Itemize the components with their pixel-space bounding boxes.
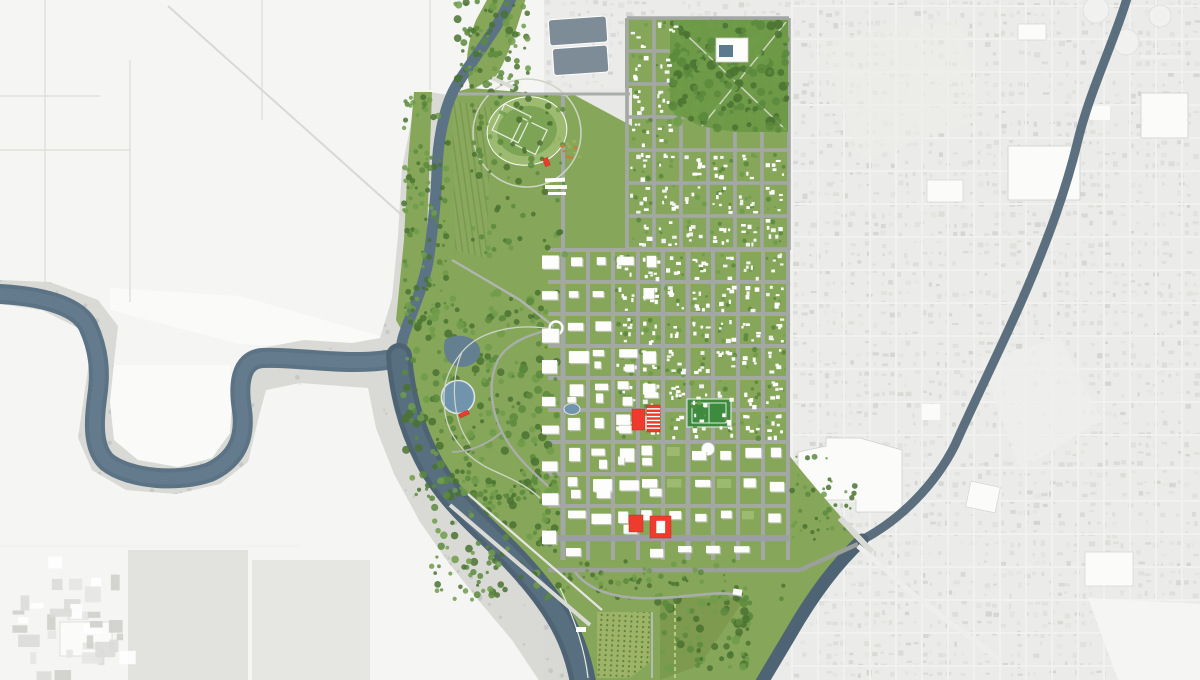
context-building: [1187, 543, 1191, 548]
context-building: [1194, 452, 1200, 454]
context-building: [1058, 621, 1064, 624]
tree: [647, 583, 652, 588]
tree: [486, 369, 490, 373]
tree: [554, 412, 560, 418]
tree: [471, 551, 475, 555]
context-building: [1121, 460, 1126, 464]
tree: [707, 37, 716, 46]
context-building: [1009, 83, 1012, 87]
tree: [676, 618, 680, 622]
tree: [418, 144, 423, 149]
context-building: [1139, 52, 1142, 55]
context-building: [986, 673, 990, 676]
context-building: [1066, 72, 1068, 77]
industrial-building: [85, 586, 101, 602]
tree: [555, 511, 560, 516]
tree: [421, 265, 424, 268]
context-building: [1113, 281, 1119, 285]
context-building: [1002, 223, 1004, 227]
context-building: [826, 393, 829, 398]
context-building: [986, 393, 990, 395]
context-building: [1018, 92, 1024, 95]
tree: [544, 596, 549, 601]
tree: [506, 323, 510, 327]
context-building: [939, 481, 944, 486]
context-building: [993, 162, 996, 166]
tree: [646, 577, 652, 583]
wood-speck: [383, 409, 385, 411]
industrial-building: [66, 650, 73, 658]
context-building: [1122, 263, 1124, 267]
context-building: [1097, 522, 1101, 525]
tree: [488, 592, 495, 599]
context-building: [1082, 260, 1087, 265]
context-building: [1065, 451, 1071, 455]
context-building: [1146, 382, 1150, 385]
context-building: [1001, 562, 1006, 566]
context-building: [881, 553, 884, 557]
context-building: [793, 262, 799, 266]
context-building: [1083, 593, 1086, 598]
tree: [471, 451, 474, 454]
context-building: [809, 373, 813, 375]
tree: [825, 457, 828, 460]
context-building: [1033, 672, 1036, 676]
context-building: [1146, 153, 1150, 157]
context-building: [1066, 543, 1070, 548]
context-building: [1195, 393, 1200, 397]
context-building: [1146, 1, 1149, 4]
context-building: [1027, 602, 1033, 605]
big-building: [927, 180, 963, 202]
context-building: [824, 242, 829, 245]
context-building: [985, 350, 990, 353]
context-building: [1017, 653, 1020, 658]
tree: [493, 289, 501, 297]
tree: [425, 188, 430, 193]
tree: [514, 319, 520, 325]
context-building: [857, 253, 860, 255]
tree: [429, 495, 435, 501]
context-building: [984, 594, 986, 596]
context-building: [1049, 324, 1051, 327]
context-building: [1193, 173, 1198, 175]
tree: [535, 406, 543, 414]
context-building: [794, 182, 798, 187]
context-building: [880, 230, 886, 235]
context-building: [833, 282, 836, 285]
tree: [503, 164, 510, 171]
context-building: [1144, 481, 1147, 483]
context-building: [1033, 314, 1036, 318]
context-building: [641, 12, 646, 16]
tree: [777, 69, 784, 76]
context-building: [1059, 583, 1065, 586]
context-building: [961, 572, 966, 577]
context-building: [819, 304, 824, 308]
tree: [718, 595, 721, 598]
context-building: [1186, 163, 1189, 166]
tree: [460, 470, 464, 474]
context-building: [954, 370, 960, 374]
context-building: [914, 241, 916, 243]
tree: [409, 475, 415, 481]
context-building: [586, 0, 588, 5]
context-building: [857, 560, 862, 564]
street-tree: [644, 23, 648, 27]
tree: [604, 588, 607, 591]
context-building: [545, 12, 549, 15]
context-building: [1074, 311, 1078, 314]
context-building: [1195, 573, 1200, 576]
context-building: [945, 521, 947, 526]
tree: [409, 317, 412, 320]
tree: [514, 309, 518, 313]
tree: [536, 341, 542, 347]
context-building: [1137, 392, 1139, 396]
context-building: [1097, 141, 1099, 144]
tree: [445, 546, 449, 550]
tree: [463, 588, 469, 594]
context-building: [1187, 291, 1193, 296]
tree: [521, 24, 526, 29]
tree: [517, 236, 522, 241]
context-building: [690, 12, 694, 16]
context-building: [993, 61, 999, 65]
context-building: [1040, 642, 1042, 646]
tree: [699, 579, 704, 584]
tree: [789, 488, 795, 494]
context-building: [889, 341, 892, 343]
map-canvas[interactable]: [0, 0, 1200, 680]
context-building: [1001, 124, 1006, 129]
tree: [410, 187, 412, 189]
context-building: [897, 443, 902, 448]
context-building: [1145, 61, 1150, 66]
tree: [674, 582, 679, 587]
context-building: [899, 174, 903, 176]
tree: [492, 66, 497, 71]
context-building: [1002, 574, 1007, 578]
context-building: [1163, 593, 1165, 596]
context-building: [1091, 40, 1096, 44]
context-building: [835, 371, 841, 376]
tree: [746, 641, 751, 646]
context-building: [874, 612, 880, 617]
context-building: [627, 0, 632, 4]
context-building: [832, 604, 836, 609]
tree: [502, 112, 506, 116]
context-building: [827, 654, 832, 659]
context-building: [1080, 252, 1083, 257]
context-building: [1193, 221, 1199, 224]
context-building: [1112, 522, 1116, 525]
context-building: [986, 602, 991, 606]
context-building: [688, 4, 690, 9]
tree: [415, 296, 420, 301]
context-building: [1146, 443, 1149, 448]
context-building: [890, 353, 896, 357]
context-building: [1080, 642, 1086, 647]
tree: [435, 302, 441, 308]
tree: [688, 116, 694, 122]
context-building: [1003, 472, 1006, 475]
context-building: [970, 24, 973, 29]
tree: [817, 528, 820, 531]
tree: [717, 117, 724, 124]
context-building: [824, 310, 826, 315]
tree: [420, 94, 426, 100]
context-building: [1010, 243, 1016, 248]
tree: [444, 142, 447, 145]
context-building: [1105, 263, 1110, 267]
tree: [598, 581, 603, 586]
tree: [431, 504, 438, 511]
context-building: [611, 14, 613, 17]
tree: [685, 626, 689, 630]
context-building: [545, 23, 548, 27]
context-building: [1066, 340, 1069, 345]
tree: [481, 589, 485, 593]
delta-orchard: [597, 612, 650, 678]
context-building: [1192, 493, 1197, 498]
context-building: [1091, 343, 1095, 346]
street-tree: [646, 175, 650, 179]
context-building: [865, 173, 869, 175]
tree: [634, 587, 637, 590]
context-building: [793, 161, 798, 164]
context-building: [1170, 52, 1176, 54]
context-building: [976, 603, 982, 608]
tree: [772, 97, 780, 105]
context-building: [898, 362, 901, 366]
tree: [520, 4, 526, 10]
context-building: [802, 114, 806, 118]
context-building: [856, 394, 860, 398]
tree: [766, 122, 775, 131]
context-building: [1099, 662, 1103, 664]
street-tree: [642, 129, 646, 133]
context-building: [1169, 591, 1175, 595]
tree: [417, 414, 424, 421]
tree: [482, 80, 490, 88]
tree: [668, 101, 677, 110]
tree: [432, 484, 437, 489]
tree: [476, 172, 483, 179]
industrial-building: [12, 625, 27, 632]
context-building: [851, 252, 855, 255]
wood-speck: [546, 658, 549, 661]
context-building: [873, 232, 879, 235]
context-building: [1059, 462, 1065, 466]
context-building: [987, 342, 993, 344]
tree: [481, 38, 488, 45]
masterplan-map[interactable]: [0, 0, 1200, 680]
tree: [711, 643, 718, 650]
context-building: [609, 54, 612, 58]
context-building: [865, 523, 868, 527]
context-building: [1010, 252, 1016, 256]
tree: [505, 546, 510, 551]
context-building: [785, 663, 789, 666]
tree: [685, 21, 689, 25]
industrial-building: [30, 603, 43, 608]
tree: [534, 386, 542, 394]
context-building: [1066, 561, 1070, 566]
tree: [701, 114, 708, 121]
context-building: [1034, 521, 1040, 525]
context-building: [569, 84, 572, 89]
context-building: [915, 222, 920, 227]
tree: [470, 103, 475, 108]
context-building: [891, 263, 895, 268]
context-building: [1065, 591, 1067, 593]
context-building: [1082, 162, 1085, 165]
tree: [477, 68, 482, 73]
tree: [677, 640, 685, 648]
context-building: [1104, 194, 1108, 199]
tree: [450, 521, 455, 526]
context-building: [1065, 583, 1070, 586]
context-building: [955, 512, 959, 516]
context-building: [808, 410, 814, 413]
context-building: [859, 552, 862, 557]
context-building: [1057, 282, 1061, 287]
context-building: [810, 92, 814, 97]
tree: [749, 69, 757, 77]
tree: [753, 106, 759, 112]
context-building: [1130, 354, 1136, 359]
context-building: [1104, 363, 1110, 368]
tree: [754, 20, 759, 25]
context-building: [1137, 83, 1142, 87]
context-building: [1120, 590, 1124, 595]
big-building: [922, 404, 940, 420]
tree: [529, 426, 535, 432]
context-building: [1058, 513, 1061, 517]
context-building: [985, 661, 990, 663]
context-building: [1073, 211, 1077, 215]
context-building: [562, 2, 567, 5]
context-building: [984, 404, 988, 408]
context-building: [1082, 181, 1085, 185]
context-building: [928, 662, 933, 665]
context-building: [1162, 223, 1165, 226]
tree: [504, 310, 511, 317]
context-building: [809, 254, 811, 256]
context-building: [832, 622, 837, 626]
tree: [507, 176, 510, 179]
context-building: [1026, 490, 1032, 494]
context-building: [962, 621, 968, 624]
context-building: [1097, 391, 1100, 394]
context-building: [914, 440, 916, 444]
context-building: [1139, 562, 1145, 565]
tree: [453, 2, 457, 6]
context-building: [802, 20, 806, 23]
context-building: [1056, 644, 1062, 649]
context-building: [888, 383, 890, 385]
context-building: [1008, 462, 1013, 465]
tree: [472, 426, 475, 429]
context-building: [929, 151, 932, 154]
context-building: [985, 42, 990, 47]
context-building: [819, 403, 821, 408]
tree: [522, 147, 526, 151]
tree: [459, 486, 463, 490]
context-building: [1138, 374, 1142, 379]
tree: [488, 134, 493, 139]
industrial-building: [18, 635, 40, 647]
context-building: [875, 591, 881, 596]
tree: [419, 201, 424, 206]
context-building: [1011, 673, 1013, 676]
context-building: [1138, 31, 1143, 35]
context-building: [914, 580, 917, 584]
context-building: [1090, 592, 1093, 596]
tree: [545, 346, 548, 349]
context-building: [906, 292, 909, 294]
context-building: [1187, 251, 1193, 254]
tree: [704, 79, 713, 88]
tree: [431, 210, 437, 216]
context-building: [1115, 93, 1119, 97]
street-tree: [645, 120, 649, 124]
tree: [435, 528, 440, 533]
context-building: [1160, 283, 1166, 286]
context-building: [904, 253, 907, 258]
context-building: [914, 280, 919, 283]
context-building: [993, 52, 996, 56]
context-building: [874, 551, 876, 556]
tree: [705, 102, 711, 108]
ball-diamond: [1083, 0, 1109, 23]
context-building: [809, 331, 811, 335]
tree: [485, 317, 492, 324]
context-building: [891, 164, 895, 168]
context-building: [978, 353, 982, 356]
context-building: [1112, 512, 1115, 516]
context-building: [907, 191, 910, 195]
context-building: [864, 412, 868, 417]
tree: [736, 618, 743, 625]
context-building: [1089, 282, 1093, 285]
context-building: [923, 351, 926, 356]
context-building: [969, 140, 972, 142]
context-building: [1160, 573, 1164, 577]
wood-speck: [0, 280, 2, 282]
context-building: [1121, 291, 1126, 293]
context-building: [834, 423, 837, 427]
context-building: [1017, 621, 1019, 625]
context-building: [826, 281, 830, 286]
context-building: [937, 672, 942, 676]
context-building: [1144, 291, 1147, 295]
industrial-building: [50, 609, 72, 617]
context-building: [1096, 671, 1101, 673]
tree: [707, 20, 715, 28]
tree: [519, 364, 528, 373]
context-building: [913, 361, 917, 366]
tree: [732, 559, 736, 563]
tree: [489, 3, 497, 11]
context-building: [994, 473, 999, 475]
tree: [506, 420, 510, 424]
tree: [555, 582, 562, 589]
context-building: [1082, 613, 1084, 617]
tree: [524, 36, 530, 42]
tree: [443, 220, 445, 222]
